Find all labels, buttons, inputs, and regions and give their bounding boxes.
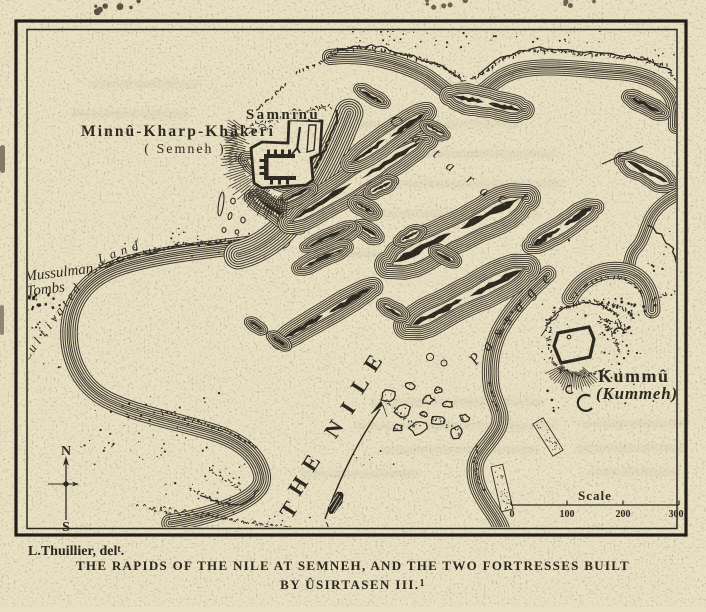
svg-text:BY ÛSIRTASEN III.1: BY ÛSIRTASEN III.1 [280, 577, 426, 592]
svg-text:L.Thuillier, delt.: L.Thuillier, delt. [28, 544, 124, 559]
svg-text:THE RAPIDS OF THE NILE AT SEMN: THE RAPIDS OF THE NILE AT SEMNEH, AND TH… [76, 558, 630, 573]
